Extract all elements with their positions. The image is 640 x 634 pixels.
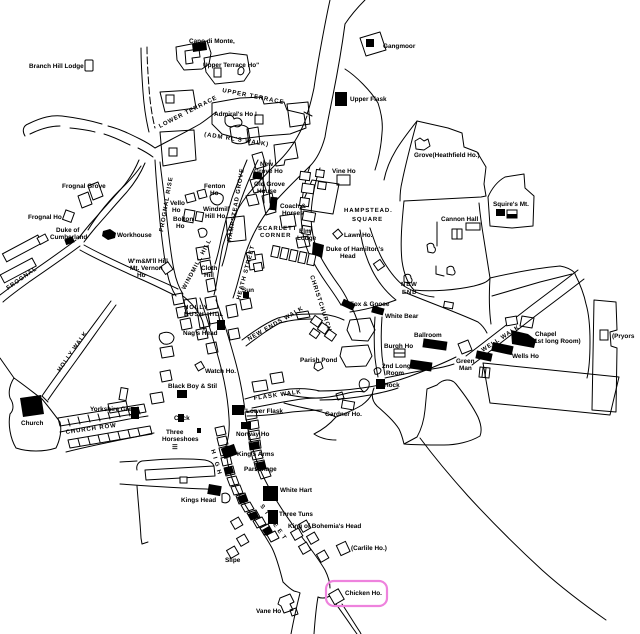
svg-text:Cannon Hall: Cannon Hall (441, 216, 479, 223)
svg-text:(Pryors: (Pryors (612, 333, 635, 340)
svg-text:New: New (260, 161, 273, 168)
svg-text:Workhouse: Workhouse (117, 232, 152, 239)
svg-text:(1st long Room): (1st long Room) (532, 338, 581, 345)
svg-text:Cloth: Cloth (201, 265, 217, 272)
svg-text:Ballroom: Ballroom (414, 332, 442, 339)
svg-text:Horses: Horses (282, 210, 304, 217)
svg-text:Kings Head: Kings Head (181, 497, 216, 504)
svg-text:Lower Flask: Lower Flask (246, 408, 283, 415)
svg-text:Capo di Monte,: Capo di Monte, (189, 38, 235, 45)
svg-text:Black Boy & Stil: Black Boy & Stil (168, 383, 217, 390)
svg-text:Lawn Ho.: Lawn Ho. (344, 232, 373, 239)
svg-text:Ho: Ho (176, 223, 185, 230)
svg-text:Grove Ho: Grove Ho (254, 168, 283, 175)
svg-text:CORNER: CORNER (260, 232, 291, 239)
svg-text:Gangmoor: Gangmoor (383, 43, 416, 50)
svg-text:Burgh Ho: Burgh Ho (384, 343, 413, 350)
svg-text:Cock: Cock (174, 415, 190, 422)
svg-text:Branch Hill Lodge: Branch Hill Lodge (29, 63, 84, 70)
svg-text:Ho: Ho (172, 207, 181, 214)
svg-text:Lodge: Lodge (297, 235, 317, 242)
svg-text:Cumberland: Cumberland (50, 234, 87, 241)
svg-text:Fox & Goose: Fox & Goose (350, 301, 390, 308)
svg-text:Wells Ho: Wells Ho (512, 353, 539, 360)
svg-text:Yorkshire Grey: Yorkshire Grey (90, 406, 136, 413)
svg-text:King's Arms: King's Arms (237, 451, 275, 458)
svg-text:House: House (257, 188, 277, 195)
svg-text:Chicken Ho.: Chicken Ho. (345, 590, 382, 597)
svg-text:Coach &: Coach & (280, 203, 306, 210)
svg-text:2nd Long: 2nd Long (382, 363, 411, 370)
svg-text:Watch Ho.: Watch Ho. (205, 368, 236, 375)
svg-text:Man: Man (459, 365, 472, 372)
svg-text:Vine Ho: Vine Ho (332, 168, 356, 175)
svg-text:Three: Three (166, 429, 184, 436)
svg-text:Ho: Ho (210, 190, 219, 197)
svg-text:Gardner Ho.: Gardner Ho. (325, 411, 362, 418)
svg-text:HAMPSTEAD.: HAMPSTEAD. (344, 207, 393, 214)
svg-text:NEW: NEW (401, 281, 418, 288)
svg-text:Elm: Elm (299, 228, 311, 235)
svg-text:Hill Ho.: Hill Ho. (205, 213, 227, 220)
svg-text:SQUARE: SQUARE (352, 216, 383, 223)
svg-text:BUSH HILL: BUSH HILL (184, 311, 224, 318)
svg-text:Windmill: Windmill (203, 206, 230, 213)
svg-text:Chapel: Chapel (535, 331, 557, 338)
svg-text:White Bear: White Bear (385, 313, 419, 320)
svg-text:Church: Church (21, 420, 43, 427)
svg-text:Grove(Heathfield Ho.): Grove(Heathfield Ho.) (414, 152, 480, 159)
svg-text:END: END (402, 289, 417, 296)
svg-text:Squire's Mt.: Squire's Mt. (493, 201, 529, 208)
svg-text:Three Tuns: Three Tuns (279, 511, 313, 518)
svg-text:HOLLY: HOLLY (184, 304, 208, 311)
svg-text:Norway Ho: Norway Ho (236, 431, 269, 438)
svg-text:SCARLETT: SCARLETT (258, 225, 297, 232)
svg-text:Hill: Hill (204, 272, 214, 279)
svg-text:Sun: Sun (242, 287, 254, 294)
svg-text:Upper Flask: Upper Flask (350, 96, 387, 103)
svg-text:Old Grove: Old Grove (254, 181, 285, 188)
svg-text:Nag's Head: Nag's Head (183, 330, 218, 337)
svg-text:☰: ☰ (172, 444, 178, 451)
svg-text:Upper Terrace Ho": Upper Terrace Ho" (203, 62, 259, 69)
svg-text:Horseshoes: Horseshoes (162, 436, 199, 443)
svg-text:Admiral's Ho !: Admiral's Ho ! (214, 111, 257, 118)
svg-text:Slipe: Slipe (225, 557, 241, 564)
svg-text:King of Bohemia's Head: King of Bohemia's Head (288, 523, 361, 530)
svg-text:Head: Head (340, 253, 356, 260)
svg-text:Parsonage: Parsonage (244, 466, 277, 473)
svg-text:Room: Room (386, 370, 404, 377)
svg-text:Mt. Vernon: Mt. Vernon (130, 265, 163, 272)
svg-text:Frognal Ho: Frognal Ho (28, 214, 62, 221)
svg-text:Parish Pond: Parish Pond (300, 357, 337, 364)
svg-text:Duke of Hamilton's: Duke of Hamilton's (326, 246, 384, 253)
svg-text:(Carlile Ho.): (Carlile Ho.) (351, 545, 387, 552)
svg-text:Vello: Vello (170, 200, 185, 207)
svg-text:Frognal Grove: Frognal Grove (62, 183, 106, 190)
svg-text:Fenton: Fenton (204, 183, 225, 190)
svg-text:W'm&M'll Hill: W'm&M'll Hill (128, 258, 168, 265)
svg-text:White Hart: White Hart (280, 487, 313, 494)
svg-text:Vane Ho: Vane Ho (256, 608, 281, 615)
svg-text:Hock: Hock (384, 382, 400, 389)
svg-text:Ho: Ho (137, 272, 146, 279)
svg-text:Green: Green (456, 358, 475, 365)
svg-text:Bolton: Bolton (173, 216, 193, 223)
svg-text:Duke of: Duke of (56, 227, 80, 234)
